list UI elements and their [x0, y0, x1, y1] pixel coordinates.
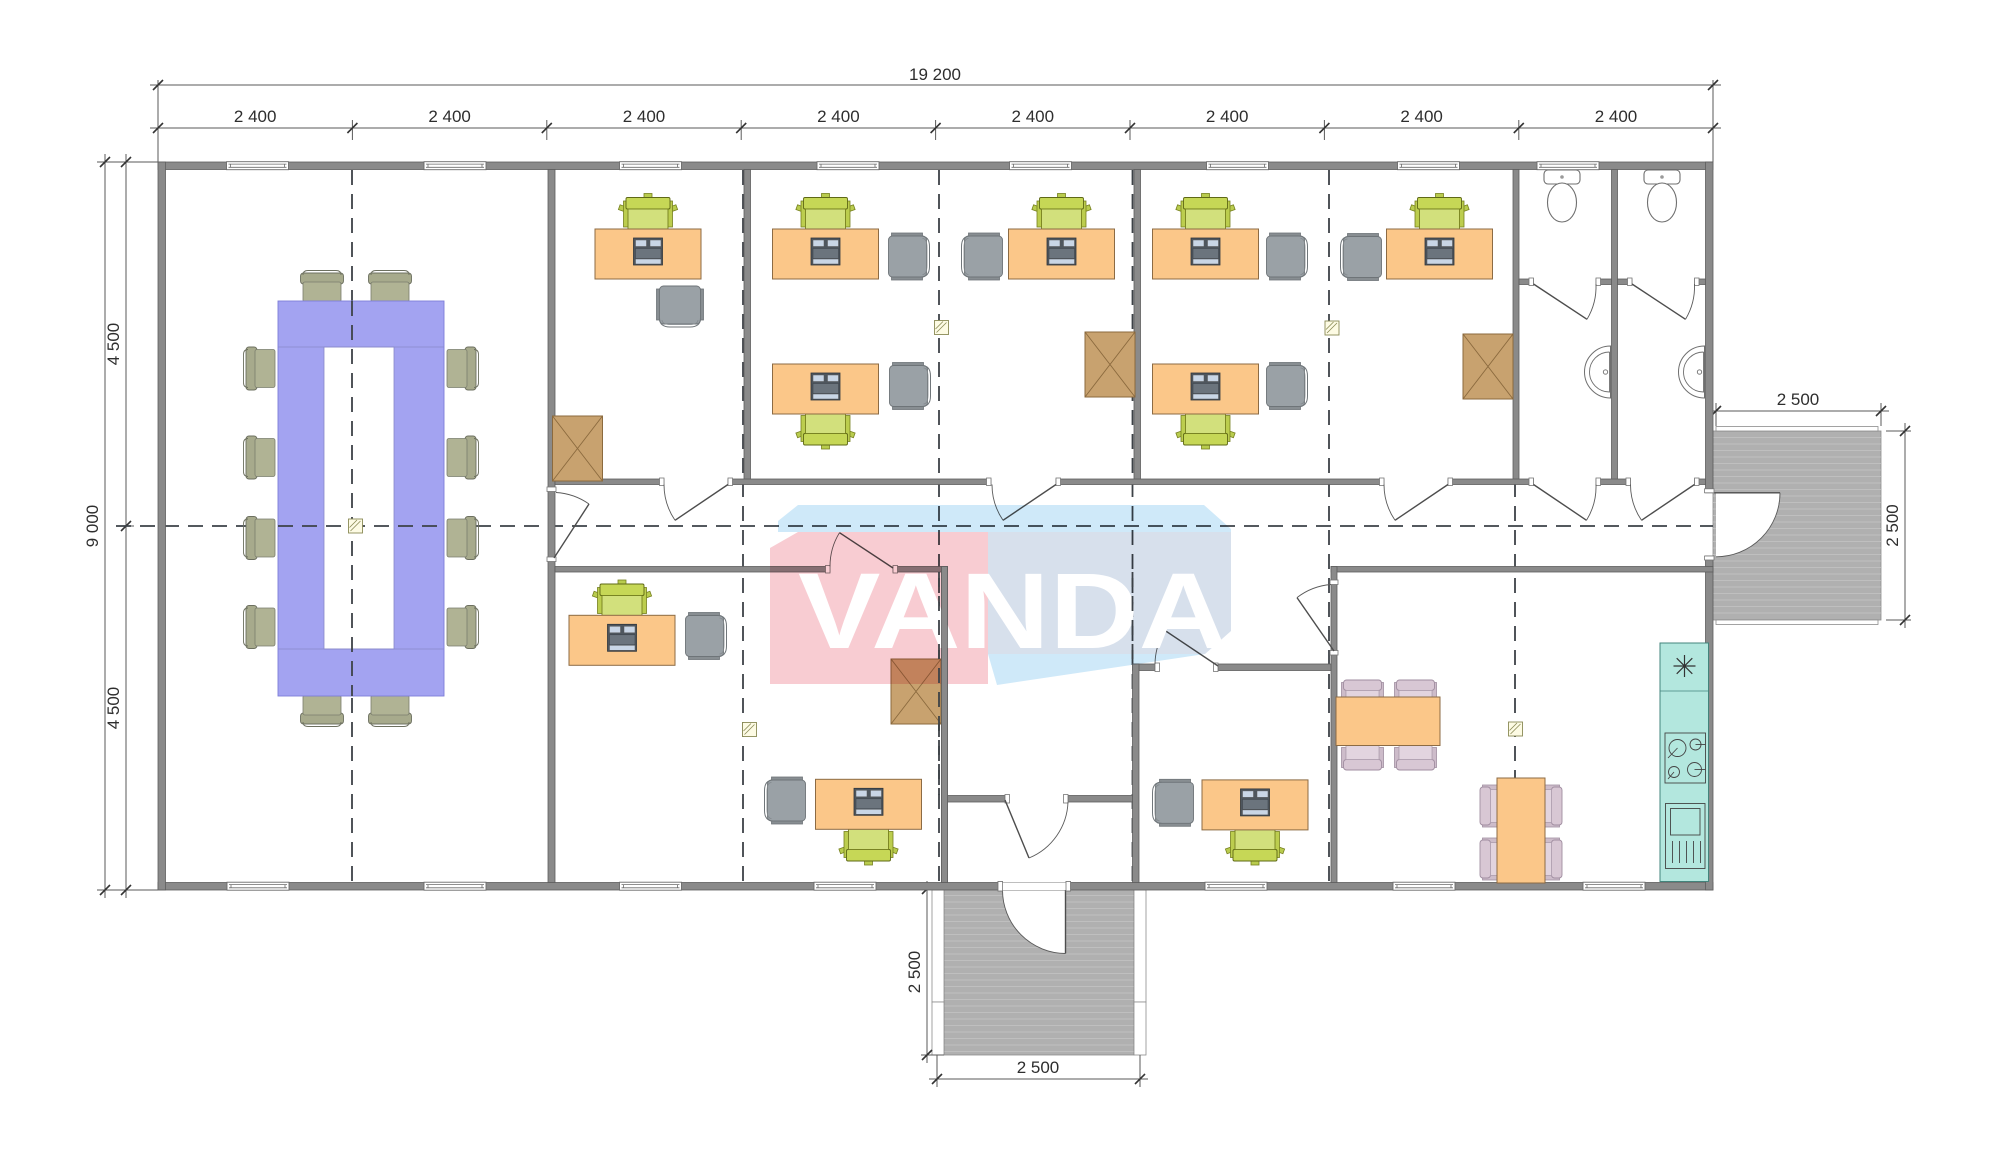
svg-text:2 400: 2 400 — [1400, 107, 1443, 126]
svg-text:2 400: 2 400 — [623, 107, 666, 126]
svg-text:2 400: 2 400 — [1595, 107, 1638, 126]
svg-text:VANDA: VANDA — [798, 550, 1228, 671]
svg-text:2 500: 2 500 — [1883, 504, 1902, 547]
svg-text:2 400: 2 400 — [234, 107, 277, 126]
svg-text:2 500: 2 500 — [1017, 1058, 1060, 1077]
svg-text:4 500: 4 500 — [104, 687, 123, 730]
svg-text:4 500: 4 500 — [104, 323, 123, 366]
svg-text:2 500: 2 500 — [1777, 390, 1820, 409]
svg-text:2 500: 2 500 — [905, 951, 924, 994]
svg-text:2 400: 2 400 — [428, 107, 471, 126]
svg-text:2 400: 2 400 — [1206, 107, 1249, 126]
svg-text:9 000: 9 000 — [83, 505, 102, 548]
svg-text:2 400: 2 400 — [817, 107, 860, 126]
svg-text:2 400: 2 400 — [1012, 107, 1055, 126]
svg-text:19 200: 19 200 — [909, 65, 961, 84]
